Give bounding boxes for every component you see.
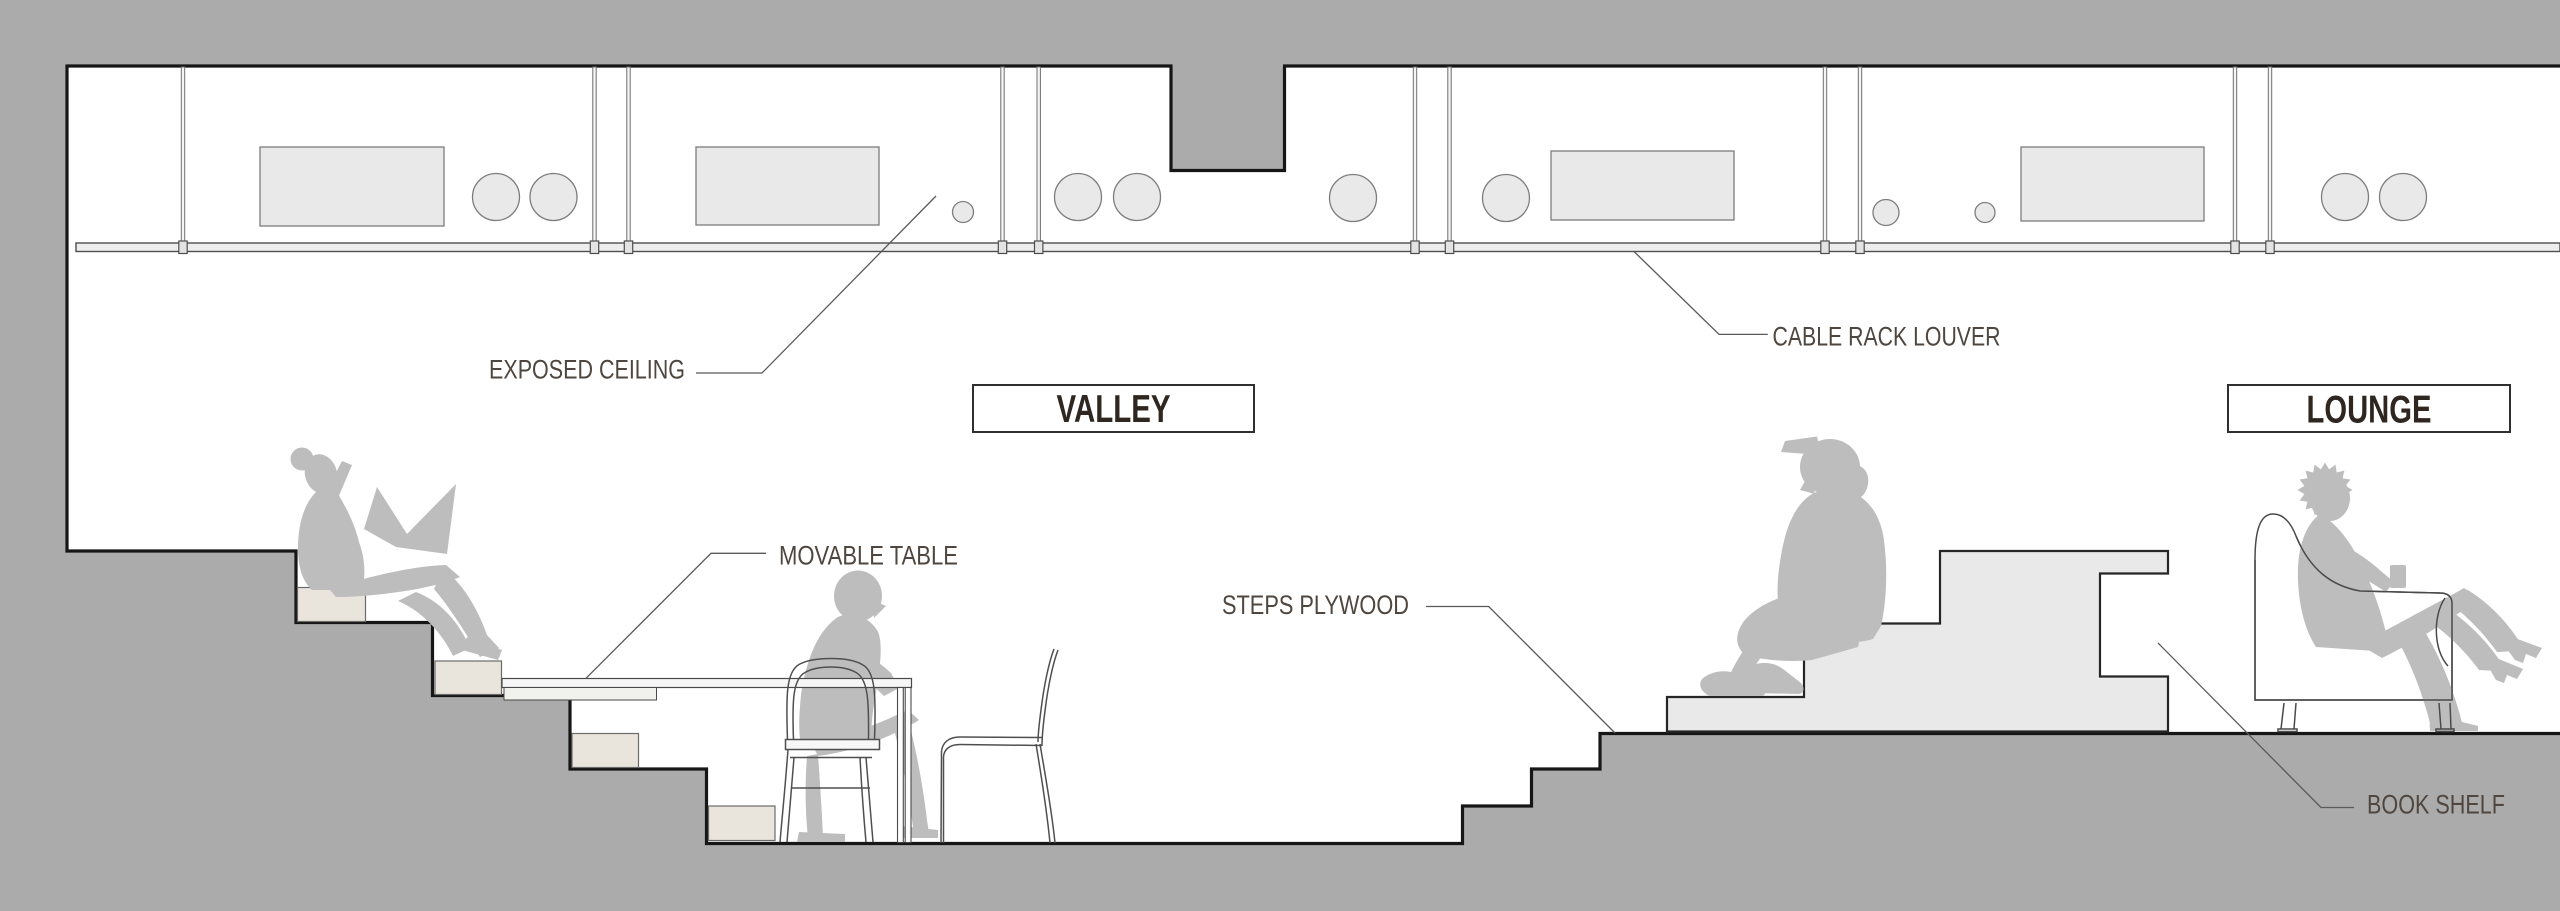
svg-text:VALLEY: VALLEY — [1057, 388, 1171, 431]
svg-text:BOOK SHELF: BOOK SHELF — [2367, 790, 2505, 820]
svg-text:CABLE RACK LOUVER: CABLE RACK LOUVER — [1773, 322, 2001, 352]
svg-text:LOUNGE: LOUNGE — [2307, 389, 2432, 432]
svg-text:EXPOSED CEILING: EXPOSED CEILING — [489, 355, 685, 385]
svg-text:STEPS PLYWOOD: STEPS PLYWOOD — [1222, 590, 1409, 620]
svg-text:MOVABLE TABLE: MOVABLE TABLE — [779, 541, 958, 571]
